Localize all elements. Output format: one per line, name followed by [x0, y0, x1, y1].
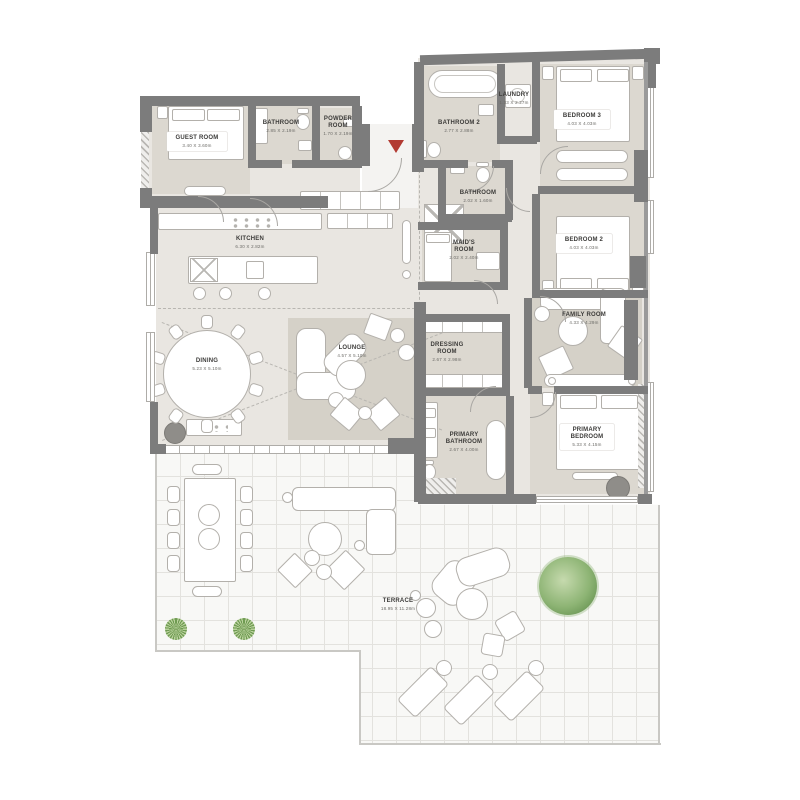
- side-table: [358, 406, 372, 420]
- wall: [438, 214, 512, 222]
- room-label-kitchen: KITCHEN6.30 X 2.82m: [220, 236, 280, 249]
- planter: [164, 422, 186, 444]
- pillow: [426, 234, 450, 243]
- tree: [539, 557, 597, 615]
- chair: [167, 486, 180, 503]
- wall: [150, 206, 158, 254]
- pillow: [172, 109, 205, 121]
- chair: [240, 555, 253, 572]
- toilet: [427, 142, 441, 158]
- room-label-guest-room: GUEST ROOM3.40 X 3.60m: [167, 132, 227, 151]
- wall: [624, 300, 638, 380]
- pillow: [560, 395, 597, 409]
- room-label-dressing-room: DRESSING ROOM2.67 X 2.98m: [427, 342, 467, 362]
- terrace-edge: [155, 452, 157, 651]
- louver: [141, 130, 149, 190]
- wall: [418, 388, 510, 396]
- room-label-bathroom-2: BATHROOM 22.77 X 2.88m: [434, 120, 484, 133]
- plant-pot: [548, 377, 556, 385]
- valve: [402, 270, 411, 279]
- room-label-primary-bedroom: PRIMARY BEDROOM5.33 X 4.15m: [560, 424, 614, 450]
- wall: [638, 494, 652, 504]
- island-hob: [246, 261, 264, 279]
- wall: [532, 194, 540, 298]
- coffee-table: [336, 360, 366, 390]
- wall: [554, 386, 648, 394]
- pouf: [398, 344, 415, 361]
- wall: [150, 196, 328, 208]
- wall: [414, 302, 426, 502]
- stool: [219, 287, 232, 300]
- nightstand: [157, 106, 168, 119]
- wall: [418, 494, 516, 504]
- terrace-sofa: [366, 509, 396, 555]
- room-label-bedroom-2: BEDROOM 24.03 X 4.03m: [556, 234, 612, 253]
- chair: [240, 486, 253, 503]
- terrace-edge: [359, 743, 661, 745]
- terrace-sofa: [292, 487, 396, 511]
- chair: [167, 509, 180, 526]
- sink: [478, 104, 494, 116]
- wall: [292, 160, 320, 168]
- room-label-terrace: TERRACE18.95 X 11.28m: [368, 598, 428, 611]
- plant: [165, 618, 187, 640]
- side-table: [436, 660, 452, 676]
- side-table: [316, 564, 332, 580]
- bathtub: [486, 420, 506, 480]
- cabinet-row: [327, 213, 393, 229]
- wall: [150, 444, 166, 454]
- wall: [538, 290, 648, 298]
- wall: [502, 314, 510, 396]
- stool: [258, 287, 271, 300]
- chair: [167, 532, 180, 549]
- wall: [312, 104, 320, 164]
- wall: [532, 60, 540, 142]
- window: [146, 252, 155, 306]
- side-table: [482, 664, 498, 680]
- chair: [192, 586, 222, 597]
- chair: [167, 555, 180, 572]
- dining-chair: [201, 419, 213, 433]
- dining-chair: [201, 315, 213, 329]
- room-label-family-room: FAMILY ROOM4.33 X 4.29m: [554, 312, 614, 325]
- sink: [298, 140, 312, 151]
- room-label-primary-bathroom: PRIMARY BATHROOM2.67 X 4.00m: [442, 432, 486, 452]
- pouf: [390, 328, 405, 343]
- window: [647, 78, 654, 178]
- wall: [634, 150, 648, 202]
- terrace-edge: [359, 650, 361, 745]
- chair: [240, 509, 253, 526]
- bowl: [198, 528, 220, 550]
- window: [146, 332, 155, 402]
- room-label-bedroom-3: BEDROOM 34.03 X 4.03m: [554, 110, 610, 129]
- terrace-edge: [155, 650, 361, 652]
- round-table: [456, 588, 488, 620]
- bowl: [198, 504, 220, 526]
- window-wall: [164, 445, 390, 454]
- wall: [418, 282, 508, 290]
- wall: [248, 160, 282, 168]
- chair: [480, 632, 505, 657]
- wall: [514, 494, 536, 504]
- wall: [140, 96, 152, 132]
- radiator: [402, 220, 411, 264]
- wall: [414, 62, 424, 172]
- pillow: [597, 69, 629, 82]
- guide-line: [158, 308, 420, 309]
- wall: [500, 224, 508, 284]
- wall: [648, 60, 656, 88]
- pillow: [207, 109, 240, 121]
- wall: [538, 186, 648, 194]
- bench: [184, 186, 226, 196]
- room-label-maids-room: MAID'S ROOM2.02 X 2.40m: [448, 240, 480, 260]
- window: [647, 382, 654, 492]
- nightstand: [542, 66, 554, 80]
- room-label-lounge: LOUNGE4.57 X 5.10m: [322, 345, 382, 358]
- wall: [418, 314, 510, 322]
- room-label-laundry: LAUNDRY1.33 X 2.27m: [497, 92, 531, 105]
- wall: [524, 298, 532, 388]
- wall: [248, 104, 256, 164]
- side-table: [282, 492, 293, 503]
- wall: [506, 396, 514, 502]
- room-label-dining: DINING5.23 X 5.10m: [177, 358, 237, 371]
- terrace-edge: [658, 505, 660, 745]
- wall: [418, 222, 508, 230]
- pillow: [560, 69, 592, 82]
- room-label-bathroom-middle: BATHROOM2.02 X 1.60m: [456, 190, 500, 203]
- window: [647, 200, 654, 254]
- toilet: [338, 146, 352, 160]
- nightstand: [632, 66, 644, 80]
- floor-plan: GUEST ROOM3.40 X 3.60m BATHROOM2.85 X 2.…: [0, 0, 800, 800]
- ottoman: [424, 620, 442, 638]
- side-table: [528, 660, 544, 676]
- wall: [497, 136, 537, 144]
- room-label-powder-room: POWDER ROOM1.70 X 2.19m: [322, 116, 354, 136]
- chair: [240, 532, 253, 549]
- island-sink: [190, 258, 218, 282]
- entry-marker: [388, 140, 404, 153]
- wall: [438, 164, 446, 216]
- dining-table: [163, 330, 251, 418]
- stool: [193, 287, 206, 300]
- plant: [233, 618, 255, 640]
- wall: [630, 256, 646, 288]
- wall: [318, 160, 362, 168]
- chair: [192, 464, 222, 475]
- room-label-bathroom: BATHROOM2.85 X 2.19m: [259, 120, 303, 133]
- side-table: [354, 540, 365, 551]
- bathtub-inner: [434, 75, 496, 93]
- pillow: [601, 395, 638, 409]
- window: [536, 496, 638, 503]
